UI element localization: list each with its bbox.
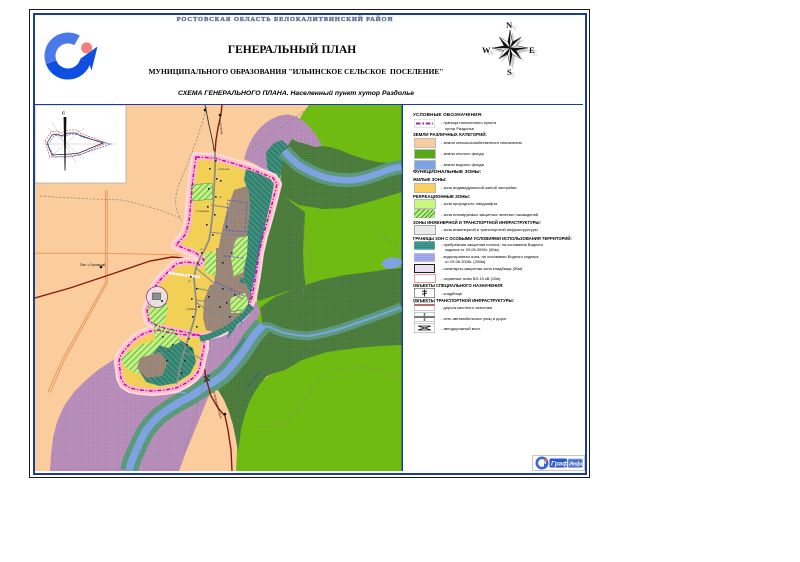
svg-text:ул.Речная: ул.Речная: [218, 168, 230, 171]
svg-text:E: E: [529, 45, 535, 55]
svg-text:ул.: ул.: [230, 288, 234, 291]
svg-text:пер.: пер.: [166, 350, 171, 353]
svg-text:N: N: [506, 20, 513, 30]
svg-text:Пав. х.Горняцкий: Пав. х.Горняцкий: [80, 263, 106, 267]
svg-text:ул.Мира: ул.Мира: [186, 308, 196, 311]
svg-text:Граф: Граф: [551, 461, 568, 468]
svg-text:ул.: ул.: [200, 248, 204, 251]
svg-text:W: W: [482, 45, 491, 55]
svg-text:Инфо: Инфо: [569, 460, 584, 467]
svg-text:ул.: ул.: [219, 196, 223, 199]
svg-text:ул.: ул.: [188, 280, 192, 283]
svg-text:S: S: [507, 67, 512, 77]
svg-text:ул.Садовая: ул.Садовая: [196, 210, 210, 213]
